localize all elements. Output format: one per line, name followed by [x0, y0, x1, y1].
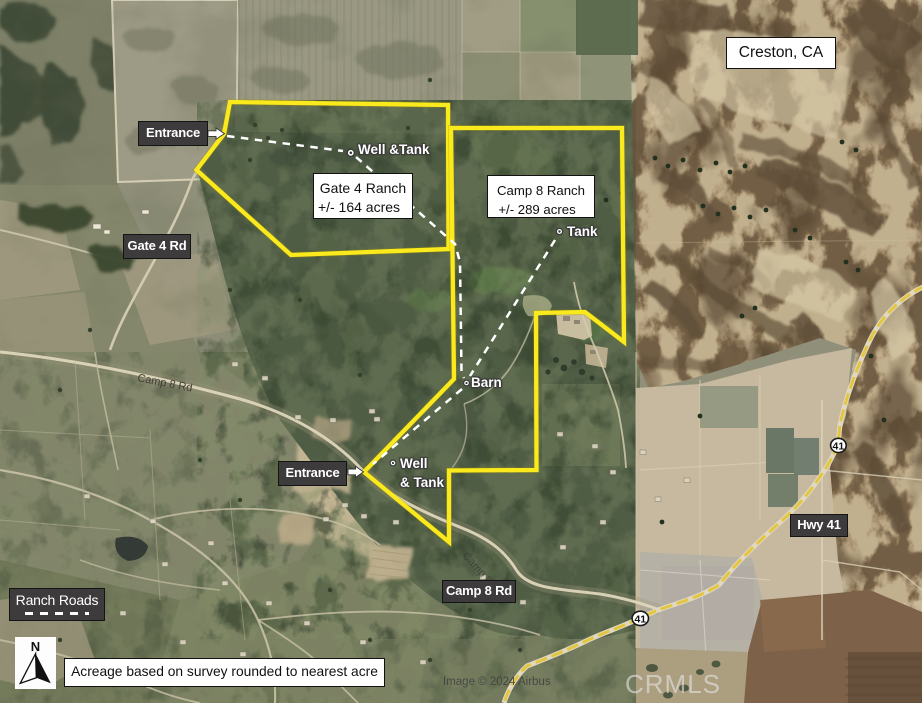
- svg-text:41: 41: [634, 613, 646, 625]
- svg-text:41: 41: [833, 440, 845, 452]
